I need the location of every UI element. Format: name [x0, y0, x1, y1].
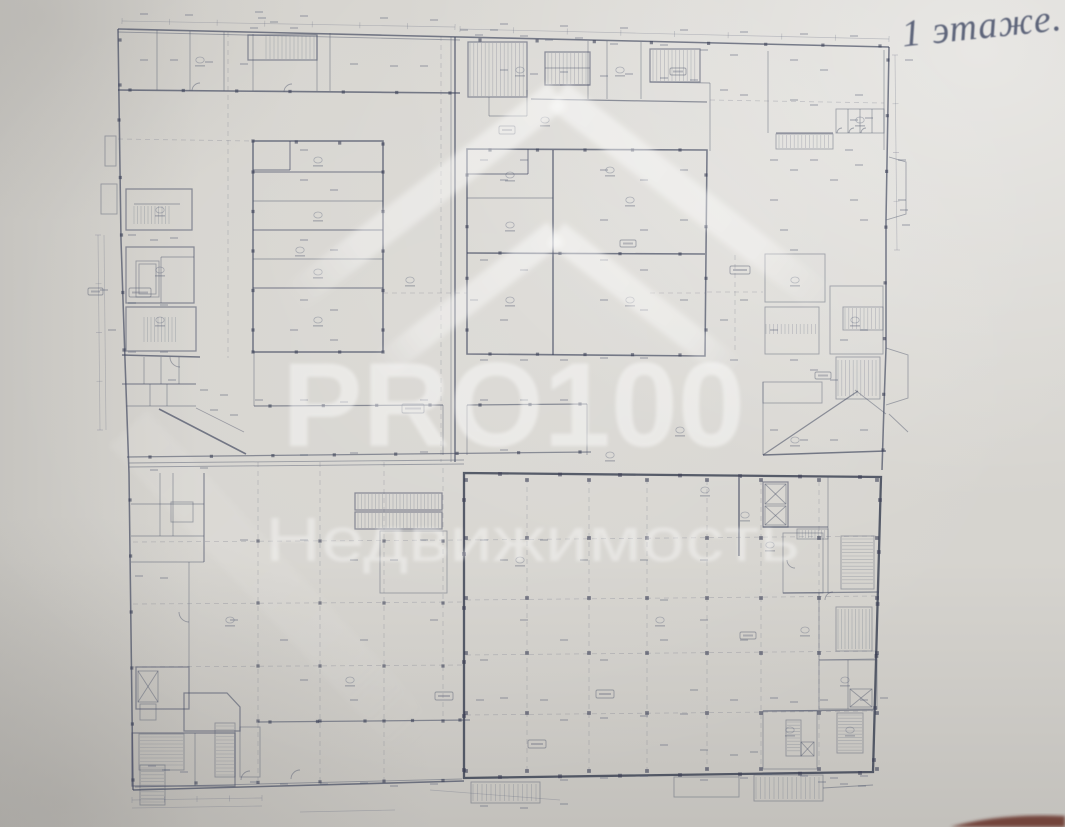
svg-text:Недвижимость: Недвижимость	[265, 506, 800, 575]
svg-text:PRO100: PRO100	[282, 338, 745, 472]
